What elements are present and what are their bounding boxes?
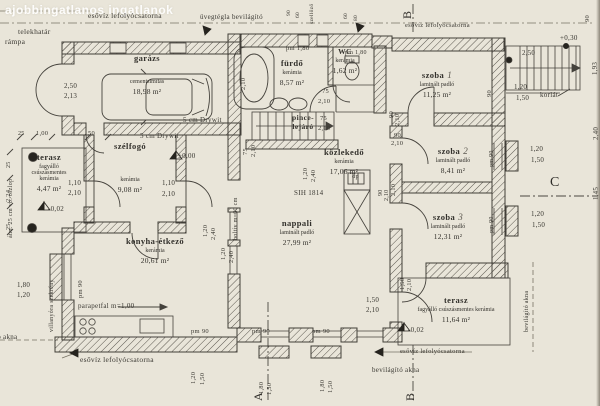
- annotation-label: rámpa: [5, 38, 25, 46]
- dimension-label: 90: [585, 15, 592, 22]
- annotation-label: 5 cm Drywit: [183, 117, 222, 124]
- dimension-label: 2,50: [522, 50, 535, 57]
- dimension-label: 2,40: [311, 170, 318, 182]
- dimension-label: 90: [287, 10, 293, 16]
- dimension-label: 1,20: [17, 292, 30, 299]
- annotation-label: üvegtégla bevilágító: [200, 14, 263, 21]
- dimension-label: 75: [243, 148, 250, 155]
- room-number: 3: [458, 212, 463, 222]
- annotation-label: +0,30: [560, 35, 578, 42]
- room-name: fürdő: [262, 58, 322, 68]
- dimension-label: 2,13: [64, 93, 77, 100]
- room-area: 4,47 m²: [25, 184, 73, 193]
- dimension-label: 2,40: [211, 228, 218, 240]
- dimension-label: 1,20: [531, 211, 544, 218]
- dimension-label: 90: [487, 90, 494, 97]
- dimension-label: 2,50: [64, 83, 77, 90]
- annotation-label: esővíz lefolyócsatorna: [80, 356, 154, 364]
- room-finish: fagyálló csúszásmentes kerámia: [25, 164, 73, 182]
- room-name: közlekedő: [314, 147, 374, 157]
- dimension-label: 1,20: [221, 248, 228, 260]
- dimension-label: 1,50: [531, 157, 544, 164]
- room-label-kozlekedo: közlekedő kerámia 17,06 m²: [314, 147, 374, 176]
- room-name: terasz: [415, 295, 497, 305]
- room-label-furdo: fürdő kerámia 8,57 m²: [262, 58, 322, 87]
- room-area: 20,61 m²: [113, 256, 197, 265]
- dimension-label: 1,20: [530, 146, 543, 153]
- dimension-label: 2,10: [318, 126, 330, 133]
- room-label-terasz-right: terasz fagyálló csúszásmentes kerámia 11…: [415, 295, 497, 324]
- room-finish: fagyálló csúszásmentes kerámia: [415, 307, 497, 313]
- dimension-label: 2,10: [395, 114, 402, 126]
- room-label-terasz-left: terasz fagyálló csúszásmentes kerámia 4,…: [25, 152, 73, 193]
- annotation-label: boltív m=60 cm: [233, 197, 239, 240]
- dimension-label: 2,10: [366, 307, 379, 314]
- room-area: 27,99 m²: [260, 238, 334, 247]
- annotation-label: pm 90: [78, 280, 85, 298]
- annotation-label: átm. 25 cm vb. oszlop: [8, 179, 14, 238]
- dimension-label: 60: [344, 13, 350, 19]
- dimension-label: 1,20: [203, 225, 210, 237]
- room-name: nappali: [260, 218, 334, 228]
- room-finish: laminált padló: [418, 224, 478, 230]
- room-name: szoba: [438, 146, 460, 156]
- annotation-label: esővíz lefolyócsatorna: [88, 12, 162, 20]
- dimension-label: 1,00: [36, 131, 48, 138]
- dimension-label: 1,20: [514, 84, 527, 91]
- room-area: 11,64 m²: [415, 315, 497, 324]
- room-label-nappali: nappali laminált padló 27,99 m²: [260, 218, 334, 247]
- annotation-label: C: [550, 176, 559, 190]
- room-label-szoba-3: szoba3 laminált padló 12,31 m²: [418, 212, 478, 241]
- room-finish: kerámia: [262, 70, 322, 76]
- dimension-label: 1,50: [532, 222, 545, 229]
- room-name: szoba: [422, 70, 444, 80]
- annotation-label: esővíz lefolyócsatorna: [400, 349, 465, 356]
- annotation-label: A: [252, 392, 264, 401]
- room-area: 18,98 m²: [104, 87, 190, 96]
- room-number: 1: [447, 70, 452, 80]
- bathroom-sinks: [270, 98, 307, 110]
- room-name: szoba: [433, 212, 455, 222]
- room-area: 12,31 m²: [418, 232, 478, 241]
- annotation-label: -0,02: [48, 206, 64, 213]
- dimension-label: 2,10: [68, 190, 81, 197]
- dimension-label: 50: [88, 131, 95, 138]
- annotation-label: pm 1,80: [286, 46, 309, 53]
- annotation-label: parapetfal m=1,00: [78, 303, 134, 310]
- room-finish: kerámia: [314, 159, 374, 165]
- room-area: 17,06 m²: [314, 167, 374, 176]
- dimension-label: 2,10: [318, 99, 330, 106]
- dimension-label: 1,20: [191, 372, 198, 384]
- room-finish: kerámia: [113, 248, 197, 254]
- dimension-label: 2,40: [229, 251, 236, 263]
- dimension-label: 2,10: [162, 191, 175, 198]
- room-name: szélfogó: [100, 141, 160, 151]
- annotation-label: pm 90: [191, 329, 209, 336]
- room-label-szoba-2: szoba2 laminált padló 8,41 m²: [423, 146, 483, 175]
- annotation-label: telekhatár: [18, 28, 51, 36]
- room-finish: laminált padló: [407, 82, 467, 88]
- room-name: garázs: [104, 53, 190, 63]
- room-finish: kerámia: [100, 177, 160, 183]
- room-finish: kerámia: [324, 58, 366, 64]
- annotation-label: ±0,00: [178, 153, 196, 160]
- room-area: 8,41 m²: [423, 166, 483, 175]
- dimension-label: 1,50: [516, 95, 529, 102]
- dimension-label: 1,80: [320, 380, 327, 392]
- dimension-label: 2,10: [251, 145, 258, 157]
- dimension-label: 1,80: [17, 282, 30, 289]
- room-label-szoba-1: szoba1 laminált padló 11,25 m²: [407, 70, 467, 99]
- room-name: pince-lejáró: [286, 113, 320, 131]
- dimension-label: 2,40: [593, 127, 600, 140]
- room-finish: laminált padló: [423, 158, 483, 164]
- annotation-label: bevilágító akna: [524, 291, 530, 332]
- room-area: 11,25 m²: [407, 90, 467, 99]
- dimension-label: 1,20: [303, 168, 310, 180]
- dimension-label: 1,10: [68, 180, 81, 187]
- room-name: terasz: [25, 152, 73, 162]
- annotation-label: villanyóra szekrény: [49, 279, 55, 332]
- annotation-label: pm 90: [489, 216, 495, 233]
- annotation-label: B: [404, 393, 416, 401]
- room-label-pince-lejaro: pince-lejáró: [286, 113, 320, 131]
- annotation-label: pm 90: [252, 329, 270, 336]
- dimension-label: 2,10: [241, 78, 248, 90]
- room-area: 1,62 m²: [324, 66, 366, 75]
- annotation-label: B: [401, 11, 413, 19]
- dimension-label: 2,10: [391, 141, 403, 148]
- dimension-label: 75: [322, 89, 329, 96]
- dimension-label: 2,10: [407, 279, 414, 291]
- dimension-label: 60: [296, 12, 302, 18]
- dimension-label: 1,10: [162, 180, 175, 187]
- room-finish: cementsimítás: [104, 79, 190, 85]
- annotation-label: dp: [352, 174, 359, 181]
- dimension-label: 90: [394, 133, 401, 140]
- closet: [344, 190, 370, 234]
- dimension-label: 75: [320, 116, 327, 123]
- dimension-label: 1,50: [328, 381, 335, 393]
- dimension-label: 1,50: [200, 373, 207, 385]
- dimension-label: 2,10: [391, 184, 398, 196]
- dimension-label: 25: [6, 162, 12, 168]
- annotation-label: pm 90: [489, 150, 495, 167]
- room-label-konyha-etkezo: konyha-étkező kerámia 20,61 m²: [113, 236, 197, 265]
- dimension-label: 2,10: [384, 190, 390, 201]
- annotation-label: korlát: [540, 92, 558, 99]
- room-finish: laminált padló: [260, 230, 334, 236]
- room-area: 8,57 m²: [262, 78, 322, 87]
- room-area: 9,08 m²: [100, 185, 160, 194]
- dimension-label: 1,45: [593, 187, 600, 200]
- dimension-label: 1,93: [592, 62, 599, 75]
- room-label-szelfogo: szélfogó kerámia 9,08 m²: [100, 141, 160, 194]
- floorplan-page: ajobbingatlanos ingatlanok garázs cement…: [0, 0, 600, 406]
- annotation-label: szellőző: [310, 4, 316, 24]
- dimension-label: 1,50: [366, 297, 379, 304]
- annotation-label: bevilágító akna: [0, 334, 17, 341]
- dimension-label: 1,50: [267, 383, 274, 395]
- room-number: 2: [463, 146, 468, 156]
- annotation-label: -0,02: [408, 327, 424, 334]
- dimension-label: 80: [354, 15, 360, 21]
- room-name: konyha-étkező: [113, 236, 197, 246]
- dimension-label: 25: [18, 131, 24, 137]
- annotation-label: pm 1,80: [345, 50, 367, 56]
- kitchen-counter: [75, 316, 173, 337]
- annotation-label: pm 90: [312, 329, 330, 336]
- annotation-label: 5 cm Drywit: [140, 133, 179, 140]
- annotation-label: bevilágító akna: [372, 367, 419, 374]
- annotation-label: esővíz lefolyócsatorna: [405, 23, 470, 30]
- room-label-garazs: garázs cementsimítás 18,98 m²: [104, 53, 190, 96]
- annotation-label: SIH 1814: [294, 190, 323, 197]
